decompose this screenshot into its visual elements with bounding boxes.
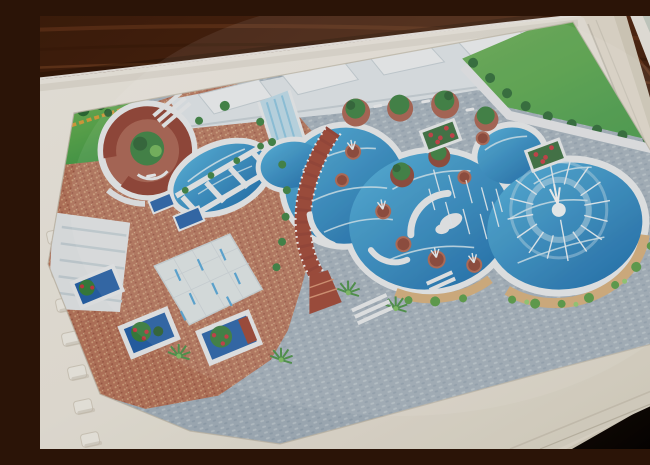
lighting-overlay — [40, 16, 650, 449]
photo-of-pool-rendering-album: Photograph of an open presentation album… — [40, 16, 650, 449]
scene-canvas — [40, 16, 650, 449]
